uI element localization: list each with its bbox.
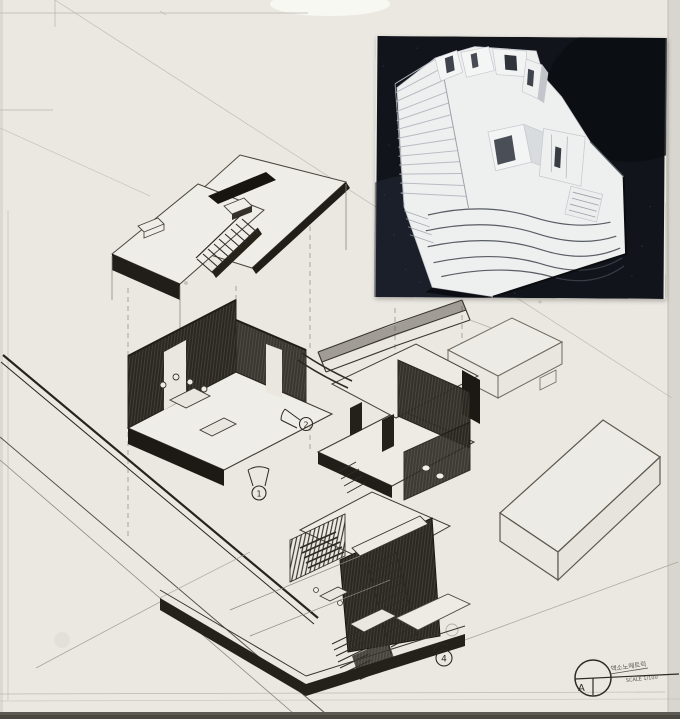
view-marker-middle-number: 1 — [256, 490, 261, 499]
paper-left-edge — [0, 0, 3, 719]
model-photo — [374, 36, 667, 299]
section-letter: A — [578, 683, 585, 694]
studio-right-wall-opening — [266, 344, 282, 398]
view-marker-top-number: 2 — [303, 421, 308, 430]
model-photo-image — [374, 36, 667, 299]
view-marker-bottom-number: 4 — [441, 655, 447, 665]
drawing-sheet: 2 1 4 A 액소노메트릭 SCALE 1/100 — [0, 0, 680, 719]
table-edge — [0, 712, 680, 719]
paper-right-edge — [668, 0, 680, 719]
